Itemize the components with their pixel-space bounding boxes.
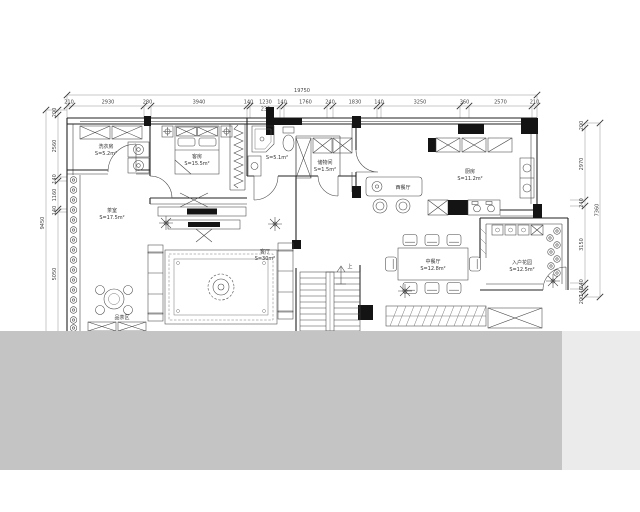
room-label-guest: 客房 [192, 153, 202, 160]
dim-seg: 140 [277, 100, 287, 106]
chair-icon [470, 257, 481, 271]
room-area-storage: S=1.5m² [314, 167, 336, 173]
stairs-up-arrow-icon [336, 266, 346, 284]
censored-region-light [562, 331, 640, 470]
tea-table-icon [96, 286, 133, 315]
door-arc [150, 176, 172, 198]
bar-sink-icon [372, 182, 382, 192]
dim-seg: 1760 [299, 100, 312, 106]
room-guest-bedroom: 客房 S=15.5m² [150, 125, 243, 198]
dim-seg: 240 [325, 100, 335, 106]
room-kitchen: 厨房 S=11.2m² [356, 138, 534, 215]
dim-seg: 280 [143, 100, 153, 106]
walls [67, 107, 568, 331]
plant-icon [159, 216, 173, 230]
room-area-laundry: S=5.2m² [95, 151, 117, 157]
dim-seg: 3150 [579, 238, 585, 251]
bar-counter: 西餐厅 [366, 177, 422, 213]
dimension-chain-left: 9450 200 2560 140 1160 140 5050 [40, 107, 67, 339]
plant-icon [398, 284, 412, 298]
washer-icon [128, 158, 149, 173]
room-label-bar: 西餐厅 [395, 184, 410, 191]
dim-seg: 140 [244, 100, 254, 106]
stairs-up-label: 上 [347, 263, 352, 270]
tv-cabinet [158, 193, 246, 242]
room-storage: 储物间 S=1.5m² [296, 138, 352, 196]
chair-icon [425, 283, 439, 294]
door-arc [254, 176, 278, 200]
floor-plan-svg: 19750 210 2930 280 3940 140 1230 232 140… [0, 0, 640, 512]
chair-icon [425, 235, 439, 246]
bar-stool-icon [396, 199, 410, 213]
sink-icon [248, 156, 261, 176]
door-arc [356, 150, 378, 172]
room-entry-garden: 入户花园 S=12.5m² [488, 225, 566, 328]
room-living: 客厅 S=30m² [148, 193, 293, 324]
room-tea: 茶室 S=17.5m² 品茶区 [70, 177, 146, 332]
room-bathroom: S=5.1m² [248, 126, 294, 200]
sofa-left [148, 245, 163, 321]
dim-seg: 140 [374, 100, 384, 106]
room-area-entry: S=12.5m² [509, 267, 534, 273]
bar-stool-icon [373, 199, 387, 213]
column-fill [352, 116, 361, 128]
chair-icon [386, 257, 397, 271]
room-laundry: 洗衣房 S=5.2m² [80, 126, 149, 173]
shoe-cabinet [488, 308, 542, 328]
room-dining: 中餐厅 S=12.8m² [386, 235, 481, 299]
dim-seg: 2570 [494, 100, 507, 106]
cabinet-icon [88, 322, 146, 331]
room-label-kitchen: 厨房 [465, 168, 475, 175]
room-area-bathroom: S=5.1m² [266, 155, 288, 161]
censored-region [0, 331, 562, 470]
dim-seg: 2560 [52, 140, 58, 153]
dim-seg: 5050 [52, 268, 58, 281]
chair-icon [403, 235, 417, 246]
room-area-dining: S=12.8m² [420, 266, 445, 272]
column-fill [292, 240, 301, 249]
chair-icon [447, 235, 461, 246]
dim-seg: 3250 [414, 100, 427, 106]
room-label-entry: 入户花园 [512, 259, 532, 266]
room-label-storage: 储物间 [317, 159, 332, 166]
dim-seg: 360 [460, 100, 470, 106]
column-fill [352, 186, 361, 198]
room-label-living: 客厅 [260, 248, 270, 255]
dim-seg: 210 [64, 100, 74, 106]
dim-seg: 3940 [193, 100, 206, 106]
room-area-tea: S=17.5m² [99, 215, 124, 221]
dim-seg: 2970 [579, 158, 585, 171]
stairs: 上 [300, 263, 360, 331]
dim-total-top: 19750 [294, 88, 310, 94]
room-label-dining: 中餐厅 [425, 258, 440, 265]
dim-seg: 200 [579, 121, 585, 131]
room-label-tea-area: 品茶区 [114, 314, 129, 321]
sofa-right [278, 243, 293, 319]
dim-seg: 1830 [349, 100, 362, 106]
column-fill [533, 204, 542, 218]
dim-total-right: 7360 [595, 204, 601, 217]
room-label-tea: 茶室 [107, 207, 117, 214]
cabinet-icon [80, 126, 142, 139]
column-fill [521, 118, 538, 134]
cabinet-icon [492, 225, 543, 235]
window-railing-strip [386, 306, 486, 326]
column-fill [266, 107, 274, 135]
room-label-laundry: 洗衣房 [98, 143, 113, 150]
chair-icon [447, 283, 461, 294]
dim-seg: 200 [52, 108, 58, 118]
dim-seg: 2930 [102, 100, 115, 106]
dim-seg: 140 [52, 174, 58, 184]
column-fill [274, 118, 302, 125]
door-arc [318, 176, 338, 196]
room-area-guest: S=15.5m² [184, 161, 209, 167]
dim-seg: 240 [579, 198, 585, 208]
room-area-kitchen: S=11.2m² [457, 176, 482, 182]
lamp-icon [222, 127, 231, 136]
dim-ext-top [67, 95, 537, 118]
sink-basin [474, 205, 481, 212]
room-area-living: S=30m² [255, 256, 276, 262]
dim-seg: 210 [530, 100, 540, 106]
lamp-icon [163, 127, 172, 136]
dimension-chain-right: 7360 200 2970 240 3150 240 140 200 [570, 120, 603, 304]
dim-seg: 140 [52, 206, 58, 216]
plant-icon [268, 217, 282, 231]
dimension-chain-top: 19750 210 2930 280 3940 140 1230 232 140… [64, 88, 540, 118]
garden-pebbles [70, 177, 77, 332]
kitchen-sink-icon [520, 158, 534, 198]
dim-seg: 1160 [52, 189, 58, 202]
island-counter [428, 200, 500, 215]
floorplan-screenshot: 19750 210 2930 280 3940 140 1230 232 140… [0, 0, 640, 512]
toilet-icon [283, 127, 294, 151]
flower-border [546, 228, 560, 288]
column-fill [458, 124, 484, 134]
wardrobe-zigzag [234, 125, 243, 188]
dim-total-left: 9450 [40, 217, 46, 230]
dim-seg: 200 [579, 295, 585, 305]
column-fill [144, 116, 151, 126]
sink-basin [488, 205, 495, 212]
dim-seg: 1230 [259, 100, 272, 106]
